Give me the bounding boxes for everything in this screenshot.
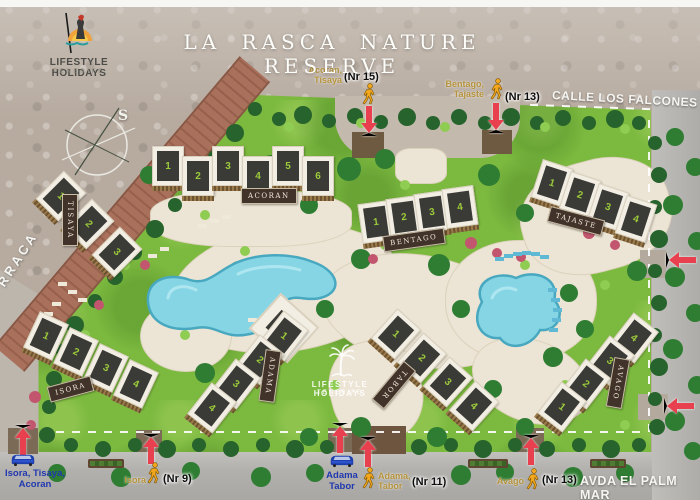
logo-brand-location: TENERIFE (24, 68, 134, 75)
east-pool (462, 262, 570, 354)
driveway (482, 130, 512, 154)
main-pool (138, 240, 350, 348)
watermark-location: TENERIFE (288, 390, 392, 396)
entrance-arrow-icon (360, 437, 376, 467)
entrance-number: (Nr 13) (505, 91, 540, 103)
entrance-label-bentago-tajaste: Bentago,Tajaste (438, 79, 484, 100)
page-title: LA RASCA NATURE RESERVE (122, 30, 542, 78)
entrance-label-avago: Avago (490, 476, 524, 486)
dashed-line (648, 120, 650, 440)
palm-watermark-icon (326, 342, 356, 378)
street-name-left: RRACA (0, 206, 56, 290)
entrance-label-adama-tabor: Adama,Tabor (378, 471, 414, 492)
entrance-arrow-icon (361, 106, 377, 136)
street-planter (468, 459, 508, 468)
building-tisaya-plaque: TISAYA (62, 194, 78, 246)
entrance-arrow-icon (523, 435, 539, 465)
building-acoran-unit: 3 (212, 146, 244, 186)
building-bentago-unit: 4 (441, 185, 478, 229)
building-acoran-plaque: ACORAN (241, 188, 297, 204)
pedestrian-icon (362, 467, 376, 489)
top-border (0, 0, 700, 7)
compass-icon (57, 100, 142, 185)
entrance-number: (Nr 11) (412, 476, 446, 488)
entrance-arrow-icon (488, 103, 504, 133)
entry-path (395, 148, 447, 184)
building-acoran-unit: 6 (302, 156, 334, 196)
entrance-arrow-icon (664, 398, 694, 414)
entrance-label-car-west: Isora, Tisaya,Acoran (0, 468, 78, 491)
building-acoran-unit: 1 (152, 146, 184, 186)
pedestrian-icon (490, 78, 504, 100)
entrance-label-isora: Isora (112, 475, 146, 485)
entrance-arrow-icon (143, 434, 159, 464)
car-icon (8, 451, 38, 467)
logo-icon (56, 11, 98, 57)
resort-site-map: 1 2 3 TISAYA 1 2 3 4 5 6 ACORAN 1 2 3 4 … (0, 0, 700, 500)
street-planter (590, 459, 626, 468)
pedestrian-icon (362, 83, 376, 105)
pedestrian-icon (526, 468, 540, 490)
street-planter (88, 459, 124, 468)
entrance-number: (Nr 9) (163, 473, 192, 485)
compass-south-label: S (118, 108, 128, 124)
entrance-arrow-icon (666, 252, 696, 268)
right-street (652, 90, 700, 500)
pedestrian-icon (147, 462, 161, 484)
driveway (640, 250, 666, 278)
building-acoran-unit: 2 (182, 156, 214, 196)
building-acoran-unit: 5 (272, 146, 304, 186)
street-name-bottom: AVDA EL PALM MAR (580, 474, 700, 500)
entrance-arrow-icon (332, 423, 348, 453)
car-icon (327, 452, 357, 468)
entrance-number: (Nr 13) (542, 474, 577, 486)
